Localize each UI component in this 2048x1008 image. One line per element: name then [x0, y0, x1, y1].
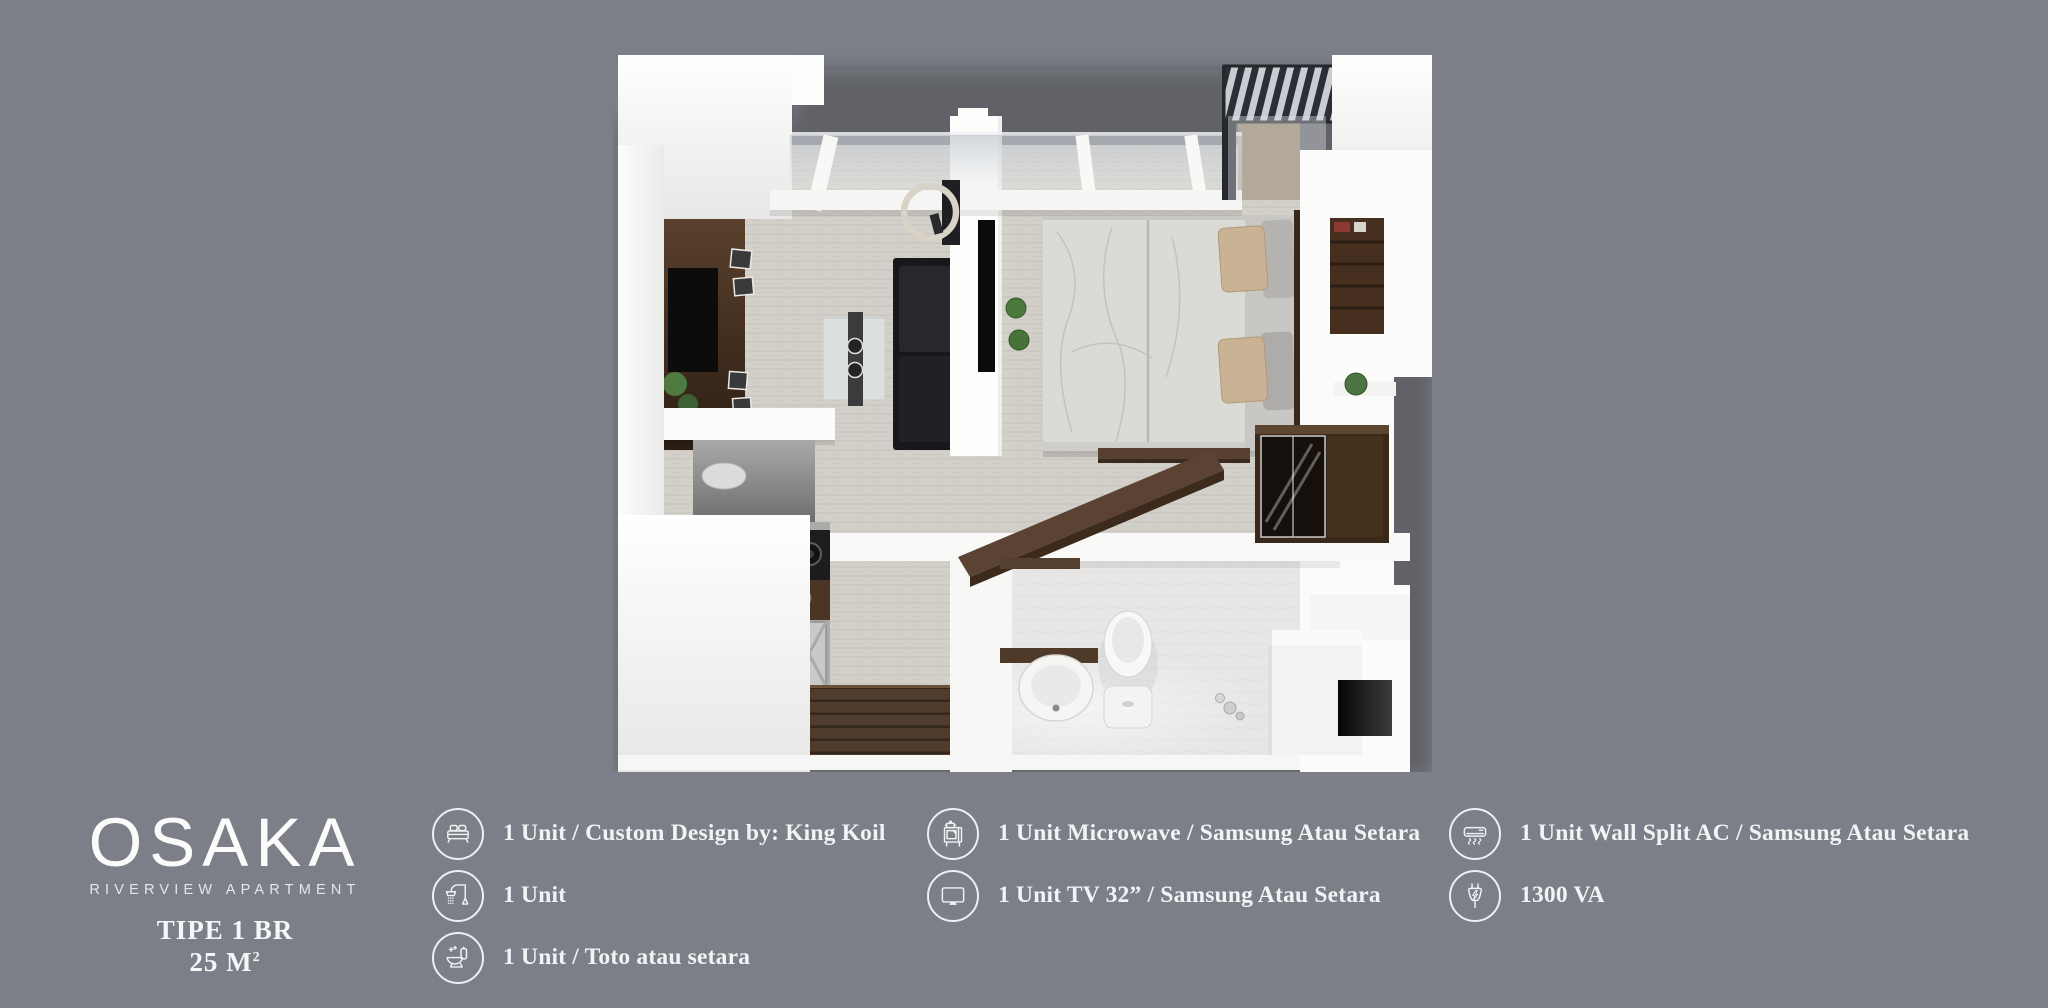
bed: [1043, 210, 1309, 457]
page-background: OSAKA RIVERVIEW APARTMENT TIPE 1 BR 25 M…: [0, 0, 2048, 1008]
plant: [663, 372, 687, 396]
white-shelf: [663, 408, 835, 440]
coffee-table: [823, 312, 885, 406]
entry-bath-wall: [950, 555, 1012, 772]
bed-icon: [432, 808, 484, 860]
toilet-icon: [432, 932, 484, 984]
legend-row-bed: 1 Unit / Custom Design by: King Koil: [432, 806, 886, 861]
apartment-floor-plan: [612, 52, 1432, 772]
legend-label: 1 Unit Microwave / Samsung Atau Setara: [998, 820, 1420, 847]
shower-icon: [432, 870, 484, 922]
plug-icon: [1449, 870, 1501, 922]
microwave-icon: [927, 808, 979, 860]
window-glass-band: [790, 135, 1242, 193]
tan-pillow: [1218, 336, 1268, 403]
entry-wood-deck: [790, 685, 958, 755]
bath-wood-trim: [1000, 558, 1080, 569]
shower-niche: [1338, 680, 1392, 736]
tv-icon: [927, 870, 979, 922]
legend-row-shower: 1 Unit: [432, 868, 886, 923]
legend-row-power: 1300 VA: [1449, 868, 1969, 923]
legend-row-tv: 1 Unit TV 32” / Samsung Atau Setara: [927, 868, 1420, 923]
legend-label: 1 Unit TV 32” / Samsung Atau Setara: [998, 882, 1381, 909]
tan-pillow: [1218, 225, 1268, 292]
legend-label: 1300 VA: [1520, 882, 1605, 909]
duvet: [1043, 220, 1245, 450]
legend-row-toilet: 1 Unit / Toto atau setara: [432, 930, 886, 985]
legend-label: 1 Unit Wall Split AC / Samsung Atau Seta…: [1520, 820, 1969, 847]
legend-column-1: 1 Unit / Custom Design by: King Koil 1 U…: [432, 806, 886, 992]
legend-label: 1 Unit: [503, 882, 566, 909]
legend-row-ac: 1 Unit Wall Split AC / Samsung Atau Seta…: [1449, 806, 1969, 861]
floor-plan-render: [612, 52, 1432, 772]
balcony-pergola-slats: [1224, 66, 1334, 122]
brand-subtitle: RIVERVIEW APARTMENT: [58, 882, 392, 898]
legend-label: 1 Unit / Custom Design by: King Koil: [503, 820, 886, 847]
legend-label: 1 Unit / Toto atau setara: [503, 944, 750, 971]
wall-shelf: [1330, 218, 1384, 334]
bottom-left-wall-block: [618, 515, 810, 772]
brand-block: OSAKA RIVERVIEW APARTMENT TIPE 1 BR 25 M…: [58, 808, 392, 978]
size-superscript: 2: [253, 950, 261, 965]
legend-column-2: 1 Unit Microwave / Samsung Atau Setara 1…: [927, 806, 1420, 930]
faucet: [1053, 705, 1060, 712]
bedroom-tv-panel: [978, 220, 995, 372]
unit-size-label: 25 M2: [58, 947, 392, 978]
decor-vase: [702, 463, 746, 489]
wardrobe: [1255, 425, 1389, 543]
window-sill: [770, 190, 1242, 210]
legend-row-microwave: 1 Unit Microwave / Samsung Atau Setara: [927, 806, 1420, 861]
ac-icon: [1449, 808, 1501, 860]
unit-type-label: TIPE 1 BR: [58, 915, 392, 946]
brand-name: OSAKA: [58, 808, 392, 877]
legend-column-3: 1 Unit Wall Split AC / Samsung Atau Seta…: [1449, 806, 1969, 930]
red-book: [1334, 222, 1350, 232]
tv-console: [668, 268, 718, 372]
